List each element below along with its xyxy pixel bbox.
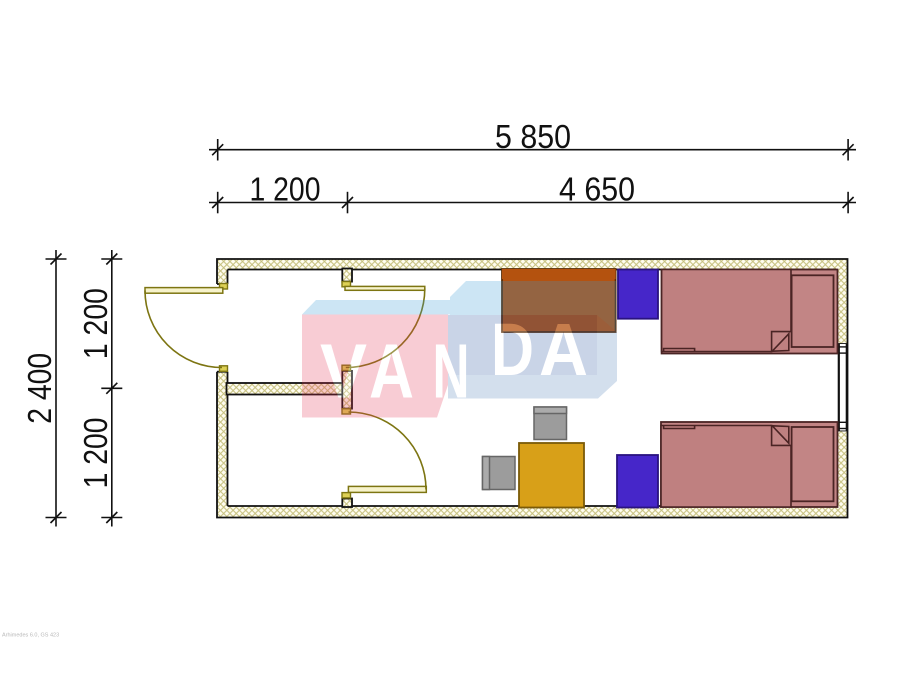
svg-text:5 850: 5 850 [495,118,571,155]
svg-text:Arhimedes 6.0, GS 423: Arhimedes 6.0, GS 423 [2,633,59,639]
svg-text:A: A [369,329,414,415]
svg-text:1 200: 1 200 [77,288,114,359]
svg-text:1 200: 1 200 [77,417,114,488]
svg-text:V: V [320,329,367,415]
svg-text:2 400: 2 400 [21,353,58,424]
svg-text:1 200: 1 200 [250,171,321,208]
svg-text:N: N [433,329,470,415]
svg-text:A: A [539,308,588,391]
svg-text:4 650: 4 650 [559,171,635,208]
svg-text:D: D [491,308,534,391]
